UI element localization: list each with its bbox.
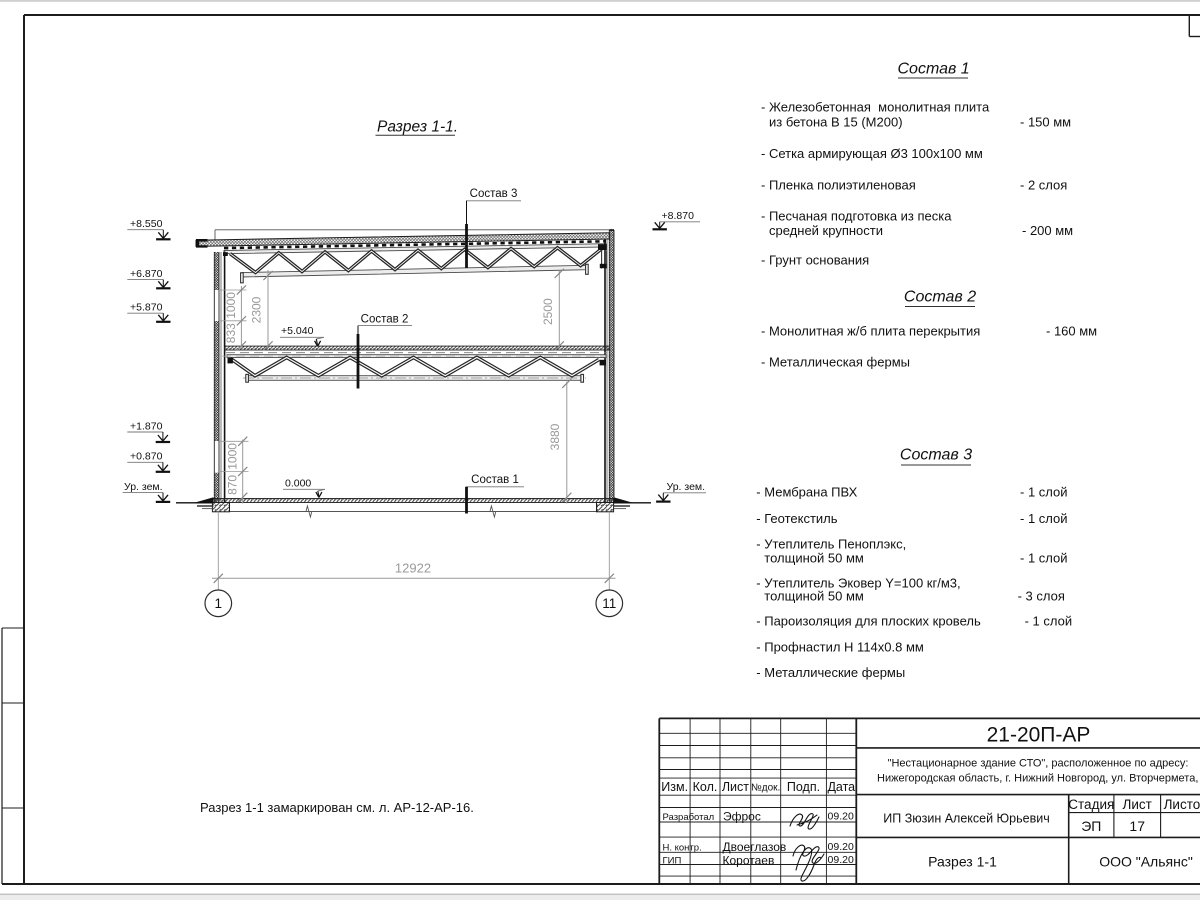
svg-text:- Пароизоляция для плоских кро: - Пароизоляция для плоских кровель <box>756 614 981 629</box>
svg-text:2500: 2500 <box>541 298 555 325</box>
svg-text:1000: 1000 <box>225 443 239 470</box>
svg-text:Разработал: Разработал <box>663 812 715 823</box>
svg-text:ИП Зюзин Алексей Юрьевич: ИП Зюзин Алексей Юрьевич <box>883 811 1050 825</box>
svg-text:"Нестационарное здание СТО", р: "Нестационарное здание СТО", расположенн… <box>888 758 1189 770</box>
svg-text:- 2 слоя: - 2 слоя <box>1020 178 1067 193</box>
svg-text:- 160 мм: - 160 мм <box>1046 324 1097 339</box>
svg-text:ООО "Альянс": ООО "Альянс" <box>1099 854 1193 870</box>
svg-text:толщиной 50 мм: толщиной 50 мм <box>764 589 864 604</box>
svg-text:- 1 слой: - 1 слой <box>1020 511 1068 526</box>
svg-text:Разрез 1-1.: Разрез 1-1. <box>377 119 458 136</box>
svg-text:+6.870: +6.870 <box>130 268 163 280</box>
svg-text:09.20: 09.20 <box>828 854 854 866</box>
svg-text:ЭП: ЭП <box>1081 818 1101 834</box>
svg-text:Состав 3: Состав 3 <box>470 188 518 200</box>
svg-text:Состав 2: Состав 2 <box>361 313 409 325</box>
svg-text:Подп.: Подп. <box>787 780 820 794</box>
svg-text:Эфрос: Эфрос <box>723 809 761 823</box>
svg-text:Состав 1: Состав 1 <box>471 474 519 486</box>
svg-text:- Железобетонная монолитная п: - Железобетонная монолитная плита <box>761 100 990 115</box>
svg-text:+8.550: +8.550 <box>130 218 163 230</box>
svg-text:Состав 3: Состав 3 <box>900 447 972 464</box>
svg-text:833: 833 <box>224 323 238 343</box>
svg-text:+0.870: +0.870 <box>130 451 163 463</box>
svg-text:Двоеглазов: Двоеглазов <box>723 840 787 854</box>
svg-text:Листов: Листов <box>1164 797 1200 812</box>
svg-text:Ур. зем.: Ур. зем. <box>124 481 163 493</box>
svg-text:- Профнастил Н 114х0.8 мм: - Профнастил Н 114х0.8 мм <box>756 640 924 655</box>
svg-text:Нижегородская область, г. Нижн: Нижегородская область, г. Нижний Новгоро… <box>877 773 1200 785</box>
svg-text:- Мембрана ПВХ: - Мембрана ПВХ <box>756 485 857 500</box>
svg-text:- Утеплитель Пеноплэкс,: - Утеплитель Пеноплэкс, <box>756 537 906 552</box>
svg-text:2300: 2300 <box>250 296 264 323</box>
svg-text:Состав 2: Состав 2 <box>904 289 976 306</box>
svg-text:Стадия: Стадия <box>1068 797 1114 812</box>
svg-text:- 1 слой: - 1 слой <box>1020 551 1068 566</box>
svg-text:Кол.: Кол. <box>693 780 718 794</box>
svg-text:09.20: 09.20 <box>828 841 854 853</box>
svg-text:№док.: №док. <box>751 783 780 794</box>
svg-text:Дата: Дата <box>827 780 855 794</box>
svg-text:Н. контр.: Н. контр. <box>663 842 702 853</box>
svg-text:Разрез 1-1: Разрез 1-1 <box>928 854 997 870</box>
svg-text:ГИП: ГИП <box>663 856 682 867</box>
svg-text:- Металлические фермы: - Металлические фермы <box>756 665 905 680</box>
svg-text:средней крупности: средней крупности <box>769 223 883 238</box>
svg-text:Лист: Лист <box>1123 797 1152 812</box>
svg-text:толщиной 50 мм: толщиной 50 мм <box>764 551 864 566</box>
svg-text:- 200 мм: - 200 мм <box>1022 223 1073 238</box>
svg-text:- Сетка армирующая Ø3 100х100: - Сетка армирующая Ø3 100х100 мм <box>761 146 983 161</box>
svg-text:- 150 мм: - 150 мм <box>1020 115 1071 130</box>
svg-text:- Металлическая фермы: - Металлическая фермы <box>761 355 910 370</box>
svg-text:Ур. зем.: Ур. зем. <box>667 481 706 493</box>
svg-text:Разрез 1-1 замаркирован см. л.: Разрез 1-1 замаркирован см. л. АР-12-АР-… <box>200 800 474 815</box>
svg-text:- Песчаная подготовка из песка: - Песчаная подготовка из песка <box>761 209 952 224</box>
svg-text:- 3 слоя: - 3 слоя <box>1018 589 1065 604</box>
svg-text:17: 17 <box>1129 818 1145 834</box>
svg-text:+1.870: +1.870 <box>130 420 163 432</box>
svg-text:+5.040: +5.040 <box>281 325 314 337</box>
svg-text:из бетона В 15 (М200): из бетона В 15 (М200) <box>769 115 903 130</box>
svg-text:- Геотекстиль: - Геотекстиль <box>756 511 837 526</box>
svg-text:- 1 слой: - 1 слой <box>1020 485 1068 500</box>
svg-text:Изм.: Изм. <box>661 780 688 794</box>
svg-text:- 1 слой: - 1 слой <box>1025 614 1073 629</box>
svg-text:09.20: 09.20 <box>828 811 854 823</box>
svg-text:+5.870: +5.870 <box>130 302 163 314</box>
svg-text:870: 870 <box>225 475 239 495</box>
svg-text:Состав 1: Состав 1 <box>897 61 969 78</box>
svg-text:1: 1 <box>215 596 223 611</box>
svg-text:3880: 3880 <box>548 423 562 450</box>
svg-text:- Грунт основания: - Грунт основания <box>761 253 869 268</box>
svg-text:Лист: Лист <box>722 780 749 794</box>
svg-text:- Монолитная ж/б плита перекры: - Монолитная ж/б плита перекрытия <box>761 324 980 339</box>
svg-text:Коротаев: Коротаев <box>723 853 775 867</box>
svg-text:21-20П-АР: 21-20П-АР <box>987 724 1091 747</box>
svg-text:0.000: 0.000 <box>285 477 311 489</box>
svg-text:- Пленка полиэтиленовая: - Пленка полиэтиленовая <box>761 178 916 193</box>
svg-text:+8.870: +8.870 <box>662 210 695 222</box>
svg-text:11: 11 <box>602 596 616 611</box>
svg-text:12922: 12922 <box>395 561 431 576</box>
svg-text:1000: 1000 <box>224 292 238 319</box>
